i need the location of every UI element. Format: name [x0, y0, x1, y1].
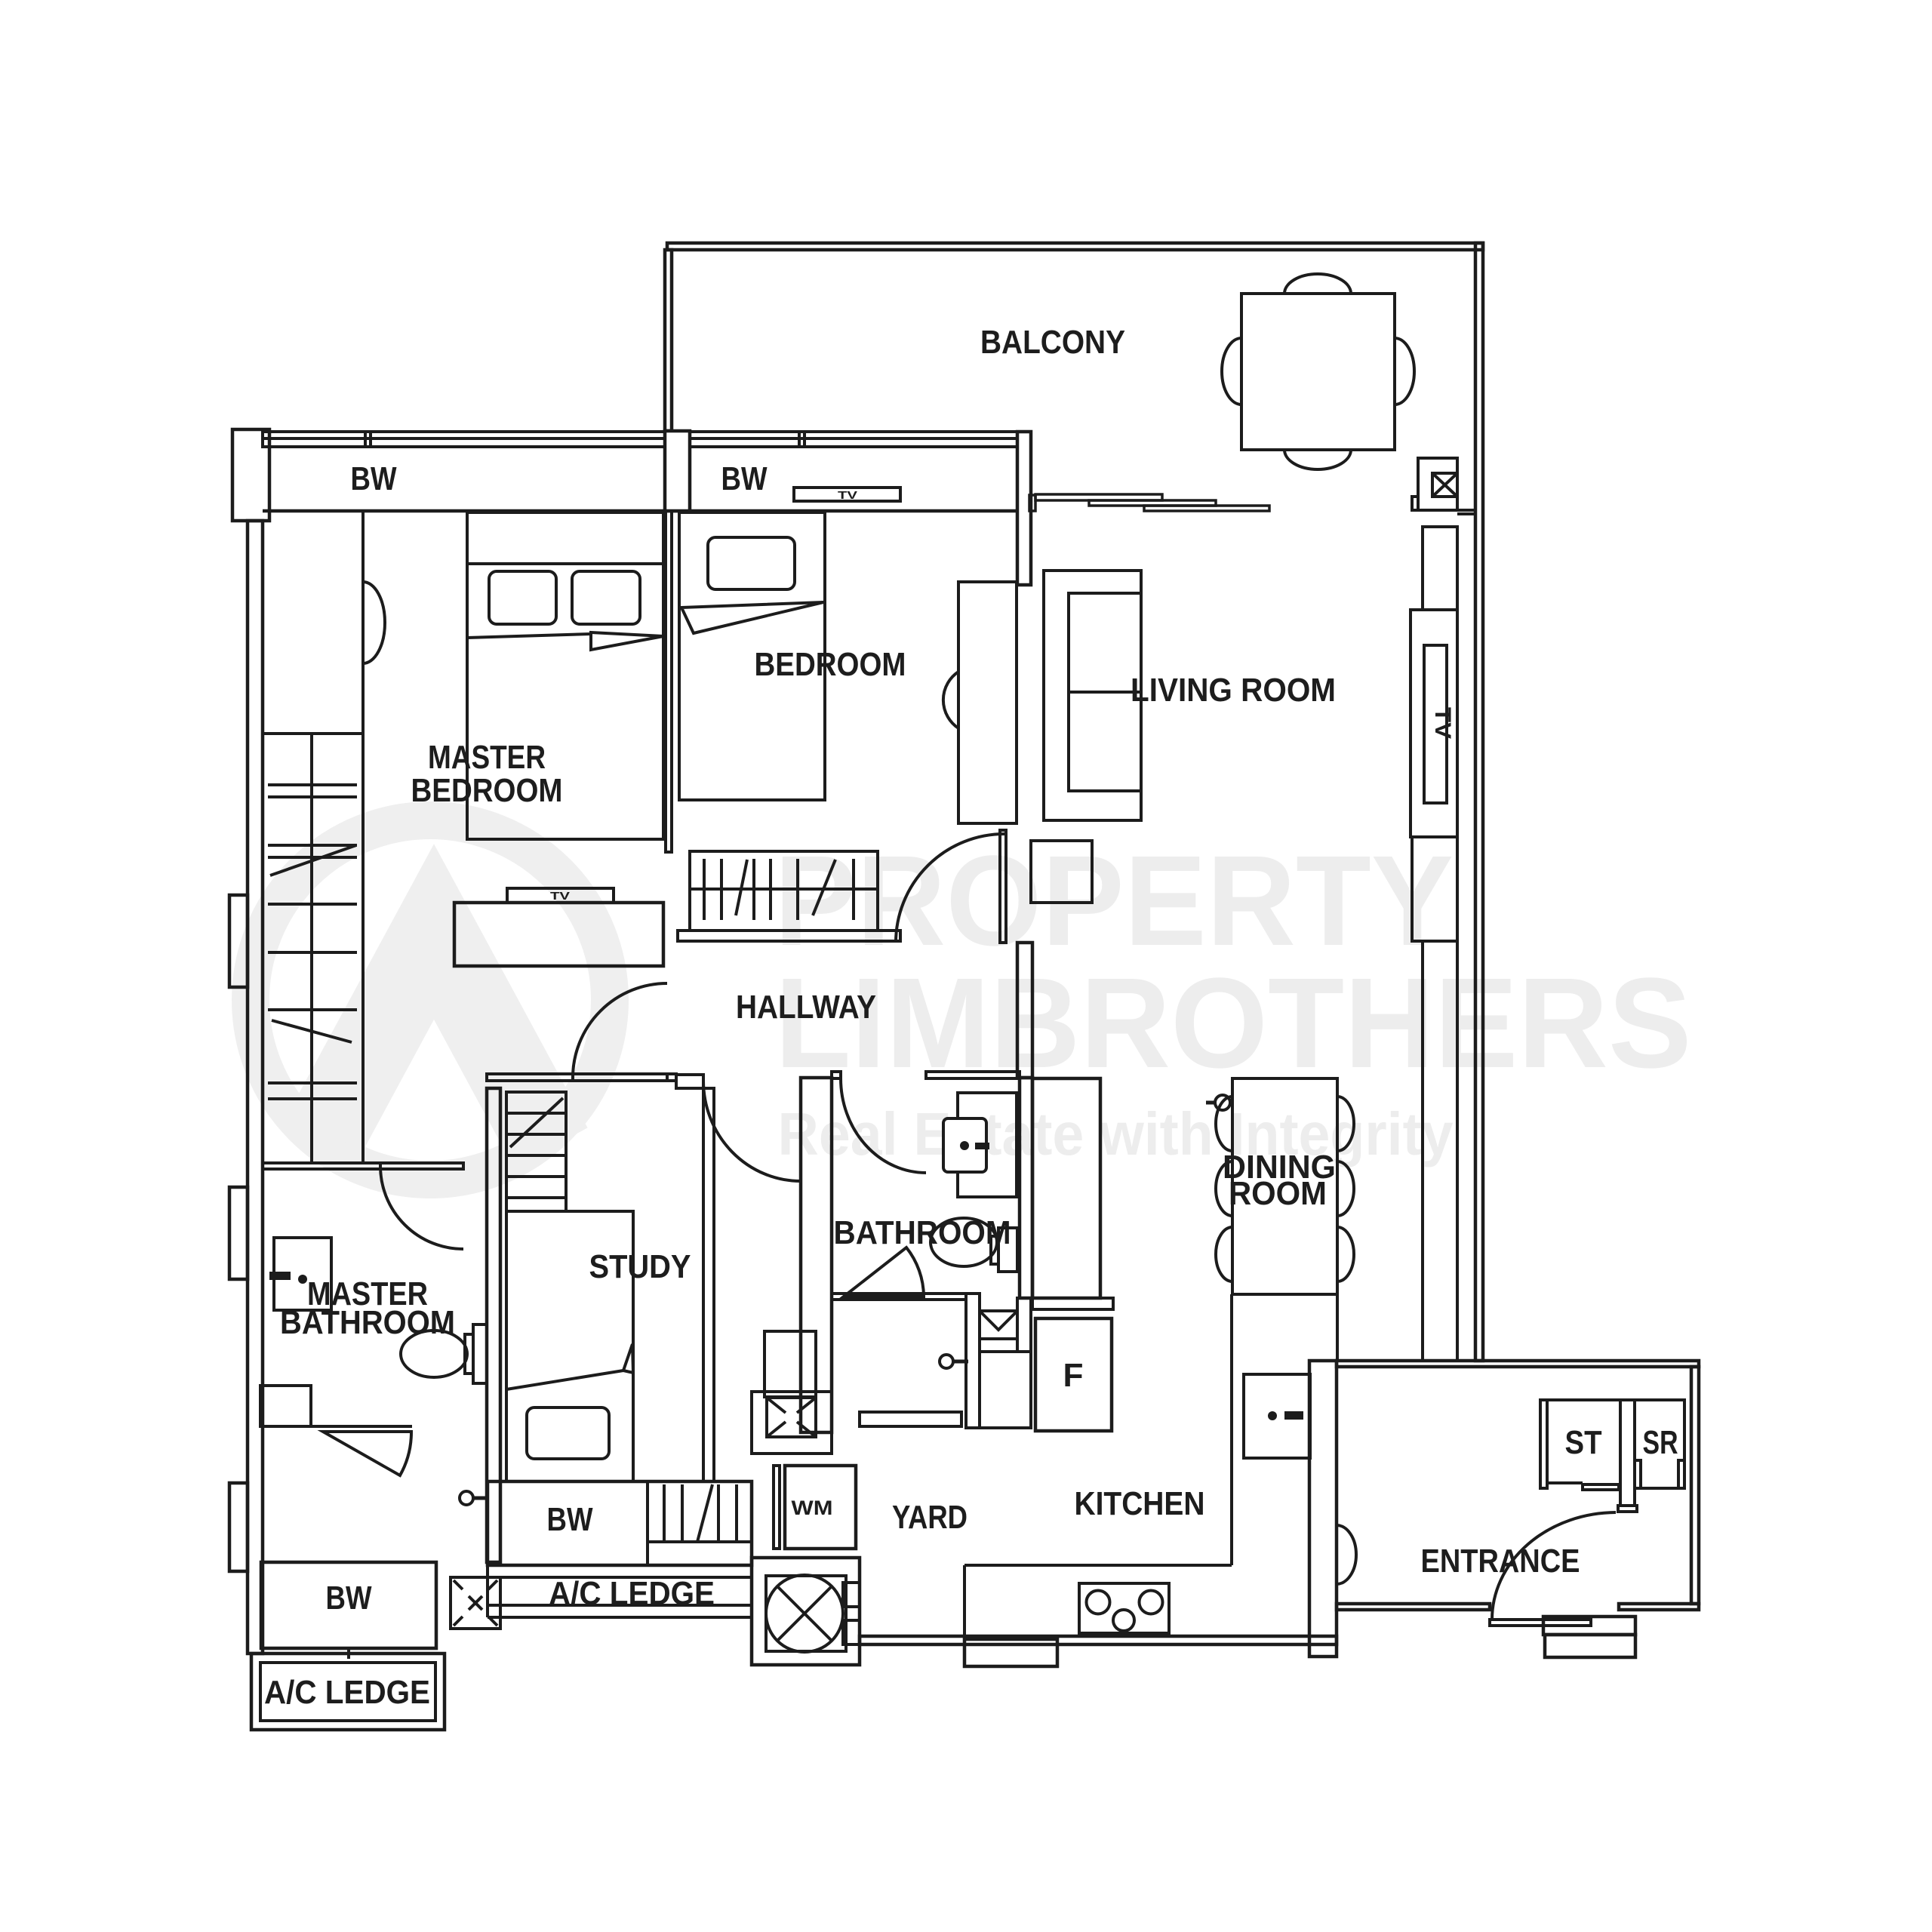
svg-text:BW: BW: [351, 460, 397, 497]
svg-text:KITCHEN: KITCHEN: [1075, 1485, 1205, 1522]
svg-text:WM: WM: [792, 1497, 833, 1519]
svg-text:A/C LEDGE: A/C LEDGE: [549, 1575, 715, 1612]
svg-text:LIMBROTHERS: LIMBROTHERS: [775, 952, 1692, 1095]
svg-text:ENTRANCE: ENTRANCE: [1421, 1543, 1580, 1580]
svg-text:TV: TV: [838, 489, 857, 502]
svg-text:TV: TV: [550, 890, 570, 903]
svg-text:A/C LEDGE: A/C LEDGE: [264, 1674, 430, 1711]
svg-text:BW: BW: [547, 1501, 593, 1538]
svg-text:BEDROOM: BEDROOM: [411, 772, 563, 809]
svg-text:TV: TV: [1430, 707, 1455, 739]
svg-text:LIVING ROOM: LIVING ROOM: [1131, 672, 1336, 709]
svg-text:F: F: [1063, 1357, 1084, 1394]
svg-text:HALLWAY: HALLWAY: [736, 989, 876, 1026]
svg-text:BATHROOM: BATHROOM: [834, 1214, 1011, 1251]
svg-text:BATHROOM: BATHROOM: [280, 1304, 455, 1341]
svg-text:YARD: YARD: [892, 1499, 968, 1536]
svg-text:BALCONY: BALCONY: [980, 324, 1125, 361]
svg-text:BW: BW: [721, 460, 768, 497]
svg-text:BEDROOM: BEDROOM: [755, 646, 906, 683]
svg-text:ROOM: ROOM: [1229, 1175, 1327, 1212]
svg-text:BW: BW: [326, 1580, 372, 1617]
svg-text:ST: ST: [1565, 1424, 1602, 1461]
svg-text:STUDY: STUDY: [589, 1248, 691, 1285]
svg-text:SR: SR: [1643, 1424, 1678, 1461]
svg-text:MASTER: MASTER: [428, 739, 546, 776]
